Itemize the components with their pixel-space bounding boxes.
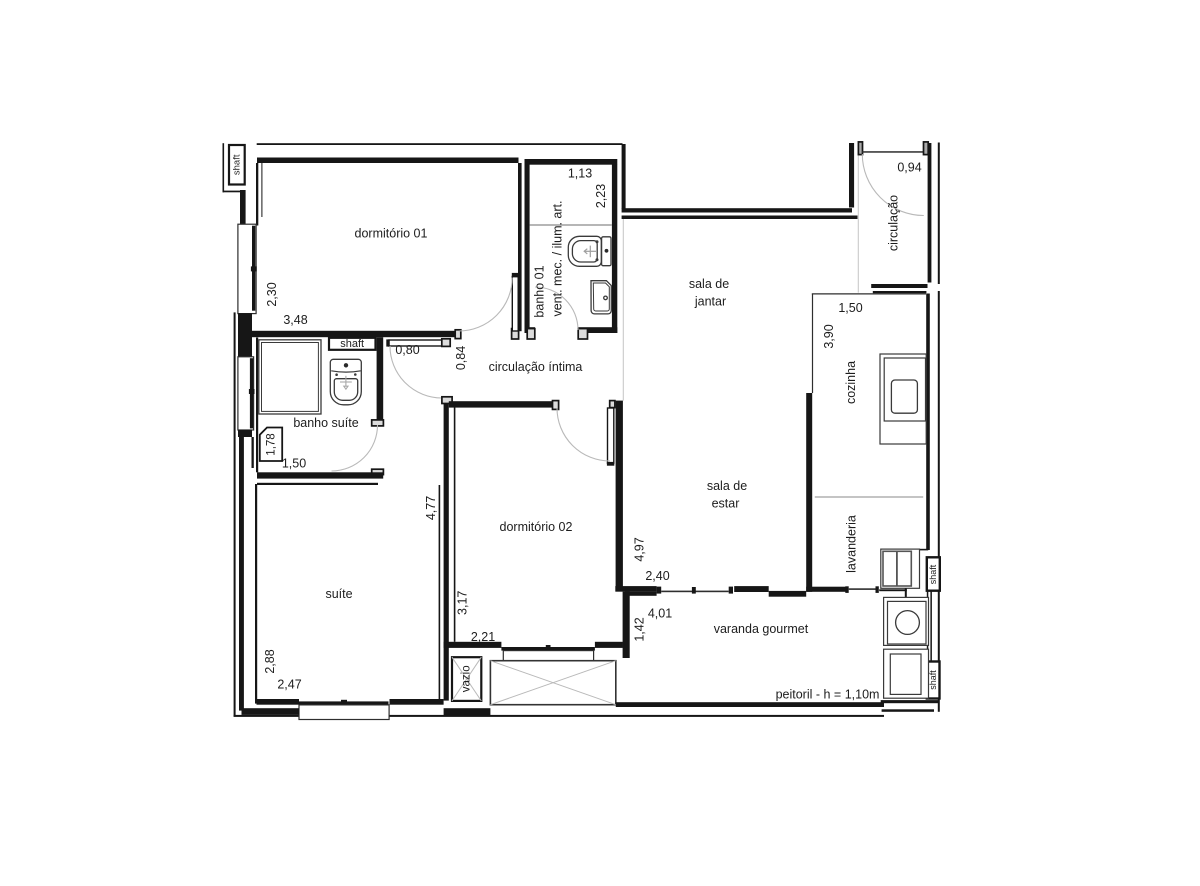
svg-text:shaft: shaft [928,564,938,584]
svg-text:1,50: 1,50 [838,301,862,315]
svg-text:4,97: 4,97 [632,537,646,561]
svg-text:suíte: suíte [325,587,352,601]
svg-text:4,01: 4,01 [648,606,672,620]
svg-text:vent. mec. / ilum. art.: vent. mec. / ilum. art. [550,200,564,316]
svg-text:2,23: 2,23 [594,184,608,208]
svg-text:lavanderia: lavanderia [844,515,858,573]
svg-text:shaft: shaft [928,670,938,690]
svg-text:1,78: 1,78 [266,433,278,455]
svg-text:banho 01: banho 01 [532,265,546,317]
svg-text:jantar: jantar [694,294,726,308]
svg-text:1,13: 1,13 [568,166,592,180]
svg-text:vazio: vazio [461,665,473,692]
svg-text:circulação: circulação [886,195,900,251]
svg-text:0,84: 0,84 [454,346,468,370]
svg-text:dormitório 01: dormitório 01 [355,226,428,240]
svg-text:2,21: 2,21 [471,630,495,644]
svg-text:2,30: 2,30 [265,282,279,306]
svg-text:3,17: 3,17 [455,591,469,615]
svg-text:sala de: sala de [689,277,729,291]
svg-text:varanda gourmet: varanda gourmet [714,622,809,636]
svg-text:sala de: sala de [707,479,747,493]
svg-text:2,40: 2,40 [645,569,669,583]
svg-text:1,42: 1,42 [632,617,646,641]
svg-text:dormitório 02: dormitório 02 [500,520,573,534]
svg-text:0,94: 0,94 [897,160,921,174]
svg-text:3,90: 3,90 [822,324,836,348]
svg-text:cozinha: cozinha [844,361,858,404]
svg-text:1,50: 1,50 [282,457,306,471]
svg-text:shaft: shaft [340,338,364,350]
svg-text:estar: estar [712,496,740,510]
svg-text:2,88: 2,88 [263,649,277,673]
svg-text:2,47: 2,47 [277,677,301,691]
svg-text:circulação íntima: circulação íntima [489,360,583,374]
svg-text:4,77: 4,77 [424,496,438,520]
svg-text:banho suíte: banho suíte [293,416,358,430]
svg-text:peitoril - h = 1,10m: peitoril - h = 1,10m [776,687,880,701]
svg-text:3,48: 3,48 [283,313,307,327]
svg-text:0,80: 0,80 [395,343,419,357]
svg-text:shaft: shaft [232,154,243,175]
